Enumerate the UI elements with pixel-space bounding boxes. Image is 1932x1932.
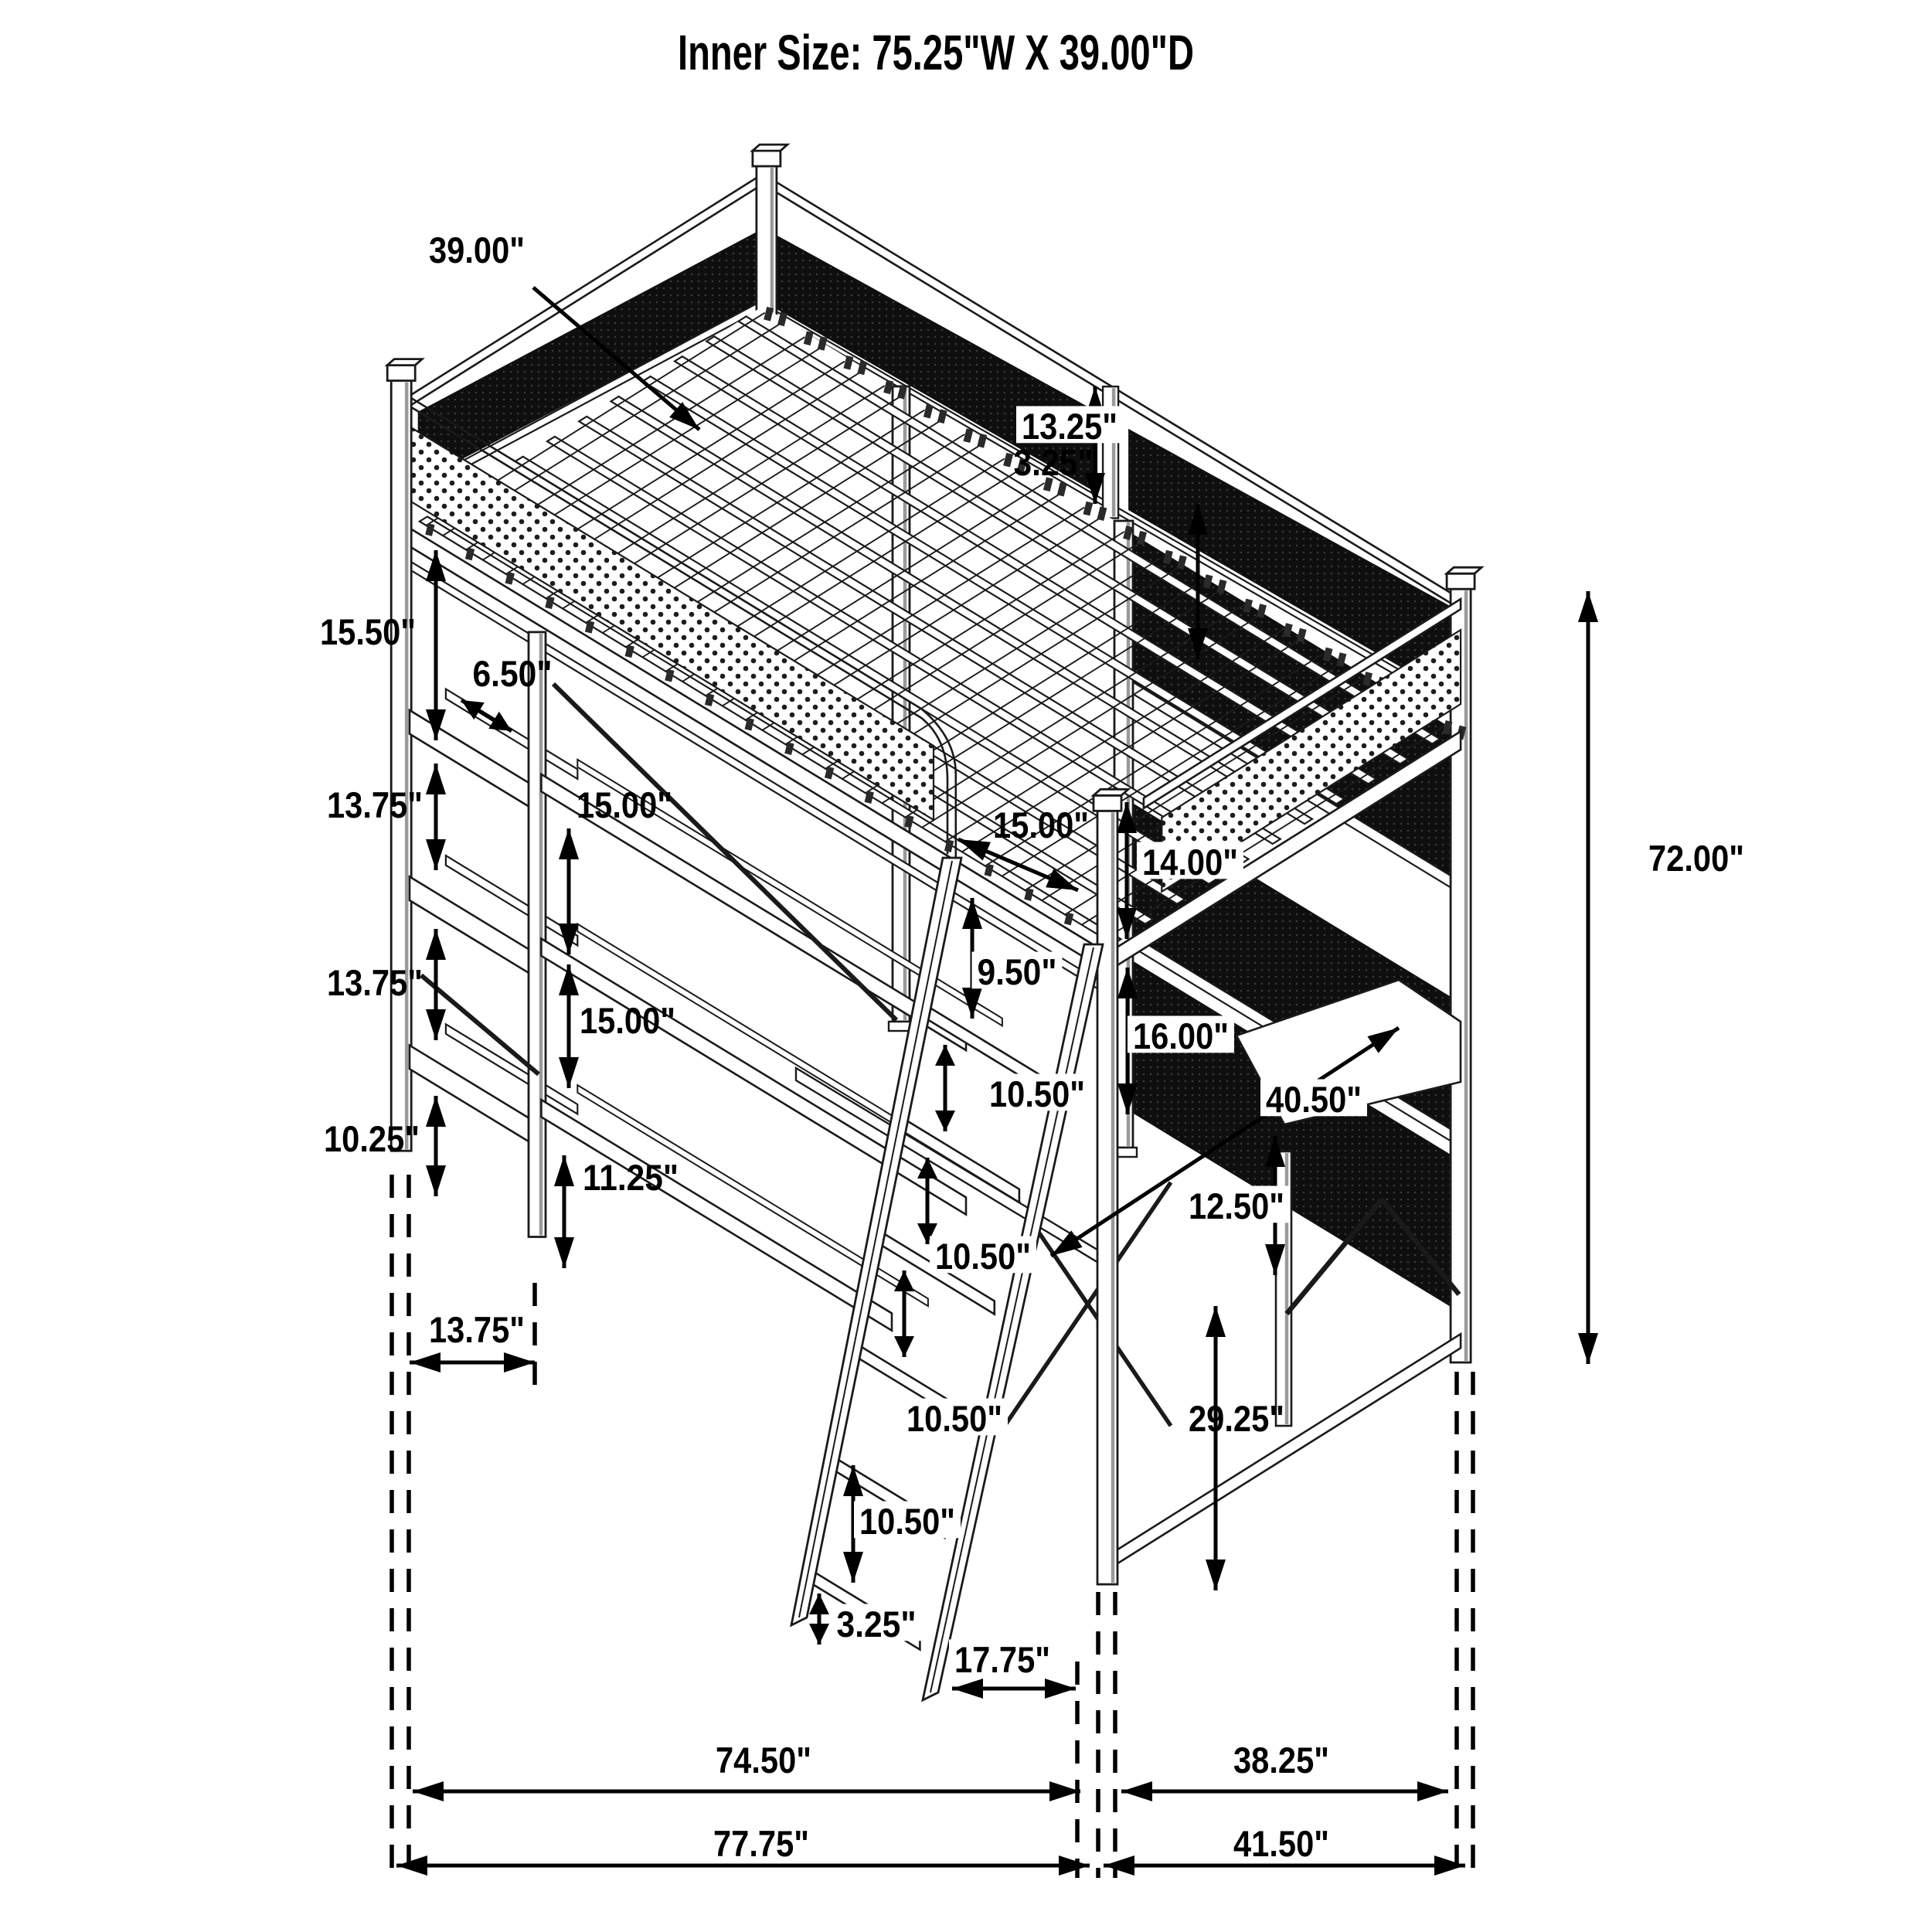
svg-text:10.50": 10.50" [935,1236,1031,1277]
svg-text:74.50": 74.50" [716,1740,811,1781]
svg-text:13.25": 13.25" [1022,406,1117,447]
svg-text:15.50": 15.50" [320,611,416,652]
svg-text:72.00": 72.00" [1648,838,1744,879]
svg-text:13.75": 13.75" [327,962,423,1003]
svg-text:77.75": 77.75" [713,1823,809,1864]
svg-text:40.50": 40.50" [1266,1079,1362,1120]
svg-text:10.50": 10.50" [989,1073,1085,1114]
svg-text:12.50": 12.50" [1189,1185,1284,1226]
svg-text:29.25": 29.25" [1189,1398,1284,1439]
svg-text:15.00": 15.00" [577,784,672,825]
svg-text:41.50": 41.50" [1233,1823,1329,1864]
svg-text:14.00": 14.00" [1142,842,1238,883]
svg-text:6.50": 6.50" [473,653,553,694]
svg-text:11.25": 11.25" [583,1157,679,1198]
svg-text:10.25": 10.25" [324,1118,420,1159]
svg-text:15.00": 15.00" [580,1000,675,1041]
svg-text:16.00": 16.00" [1133,1015,1229,1056]
svg-text:13.75": 13.75" [327,784,423,825]
svg-text:3.25": 3.25" [1014,442,1094,483]
svg-text:9.50": 9.50" [978,951,1057,992]
svg-text:13.75": 13.75" [429,1309,525,1350]
svg-text:3.25": 3.25" [837,1604,917,1645]
svg-text:39.00": 39.00" [429,230,525,270]
svg-text:10.50": 10.50" [906,1398,1002,1439]
svg-text:17.75": 17.75" [954,1639,1050,1680]
svg-text:10.50": 10.50" [859,1501,955,1542]
svg-text:Inner Size: 75.25"W X 39.00"D: Inner Size: 75.25"W X 39.00"D [678,25,1194,80]
svg-text:38.25": 38.25" [1233,1740,1329,1781]
svg-text:15.00": 15.00" [993,804,1089,845]
